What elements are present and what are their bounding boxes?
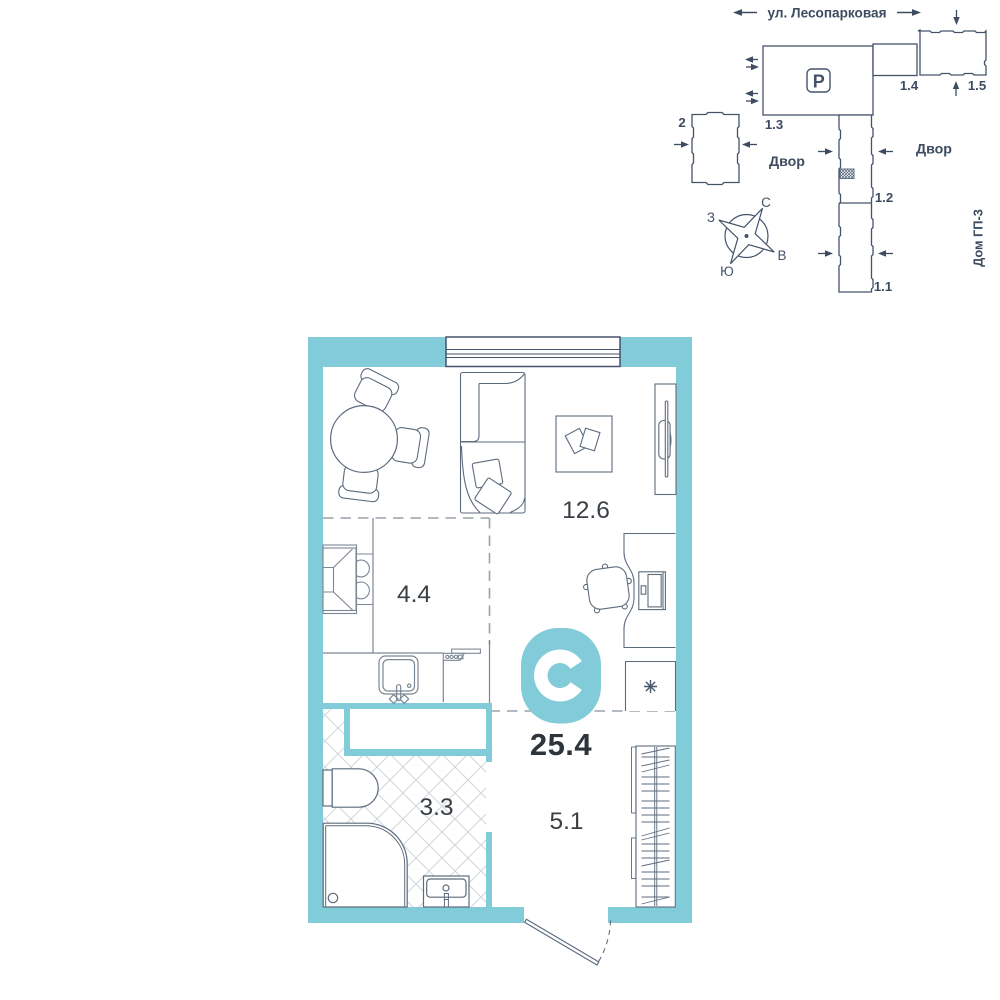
svg-text:25.4: 25.4 <box>530 727 593 762</box>
svg-text:ул. Лесопарковая: ул. Лесопарковая <box>767 6 886 21</box>
svg-text:1.1: 1.1 <box>874 279 892 294</box>
svg-text:Двор: Двор <box>916 142 952 158</box>
svg-text:С: С <box>761 195 771 210</box>
svg-text:1.2: 1.2 <box>875 190 893 205</box>
svg-text:P: P <box>813 72 825 92</box>
svg-text:В: В <box>777 248 786 263</box>
svg-text:Ю: Ю <box>720 264 734 279</box>
svg-text:Дом ГП-3: Дом ГП-3 <box>971 209 986 267</box>
svg-text:2: 2 <box>678 115 685 130</box>
svg-text:З: З <box>707 210 715 225</box>
svg-text:5.1: 5.1 <box>549 808 583 835</box>
svg-text:12.6: 12.6 <box>562 497 610 524</box>
svg-text:Двор: Двор <box>769 154 805 170</box>
svg-text:1.3: 1.3 <box>765 117 783 132</box>
svg-text:1.4: 1.4 <box>900 78 919 93</box>
svg-text:1.5: 1.5 <box>968 78 986 93</box>
svg-text:3.3: 3.3 <box>419 794 453 821</box>
svg-text:4.4: 4.4 <box>397 581 431 608</box>
